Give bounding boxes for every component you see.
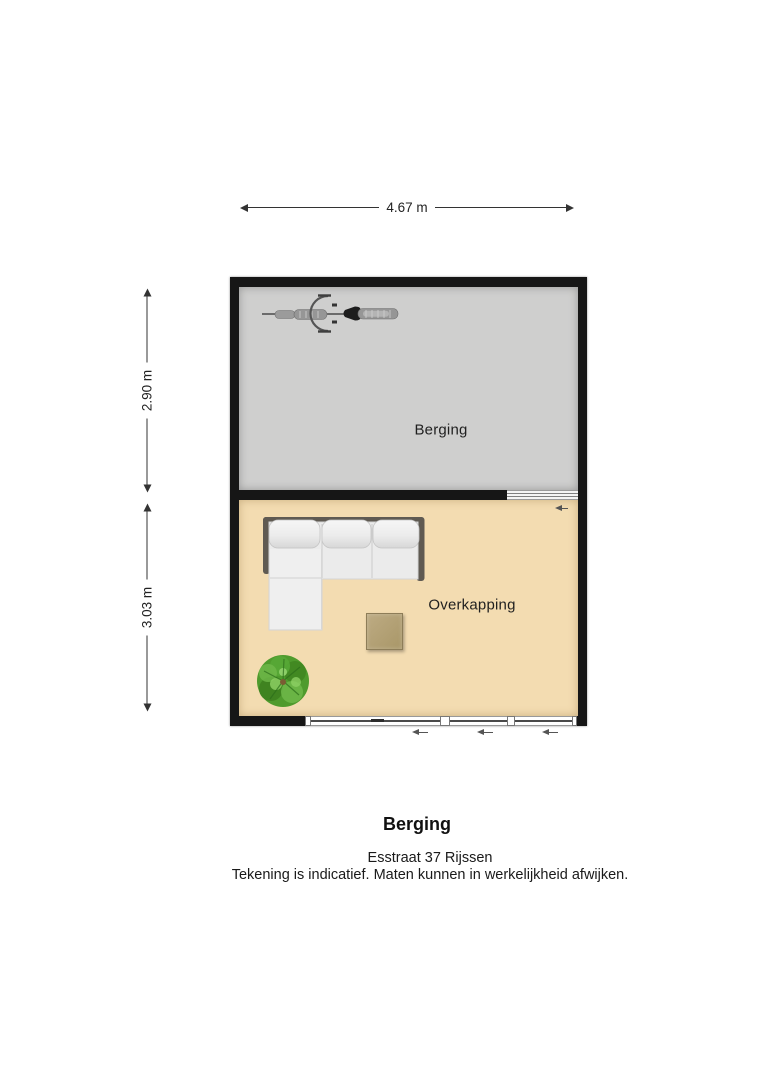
- floorplan-canvas: Berging: [230, 277, 587, 726]
- dimension-total-width-label: 4.67 m: [379, 201, 434, 214]
- room-berging: Berging: [239, 287, 578, 490]
- dimension-total-width: 4.67 m: [240, 201, 574, 214]
- arrowhead-right-icon: [566, 204, 574, 212]
- arrowhead-bottom-icon: [143, 485, 151, 493]
- sliding-panel: [311, 716, 440, 726]
- dimension-berging-depth: 2.90 m: [141, 289, 154, 493]
- arrowhead-top-icon: [143, 289, 151, 297]
- wall-post: [507, 716, 515, 726]
- bicycle-icon: [258, 291, 403, 336]
- arrowhead-bottom-icon: [143, 704, 151, 712]
- sliding-panel: [515, 716, 572, 726]
- room-berging-label: Berging: [414, 422, 467, 439]
- slide-direction-arrow-icon: [412, 729, 428, 735]
- slide-direction-arrow-icon: [477, 729, 493, 735]
- arrowhead-top-icon: [143, 504, 151, 512]
- wall-post: [440, 716, 450, 726]
- slide-direction-arrow-icon: [542, 729, 558, 735]
- slide-direction-arrow-icon: [555, 505, 568, 511]
- plan-title: Berging: [383, 814, 451, 835]
- plant-icon: [250, 649, 316, 713]
- room-overkapping-label: Overkapping: [428, 597, 515, 614]
- dimension-overkapping-depth: 3.03 m: [141, 504, 154, 712]
- door-handle-icon: [371, 719, 384, 722]
- wall-post: [572, 716, 577, 726]
- plan-address: Esstraat 37 Rijssen: [368, 850, 493, 866]
- dimension-overkapping-depth-label: 3.03 m: [141, 580, 154, 635]
- divider-sliding-door: [507, 490, 578, 500]
- arrowhead-left-icon: [240, 204, 248, 212]
- sliding-panel: [450, 716, 507, 726]
- side-table-icon: [366, 613, 403, 650]
- plan-disclaimer: Tekening is indicatief. Maten kunnen in …: [232, 867, 629, 883]
- front-sliding-wall: [305, 716, 577, 726]
- dimension-berging-depth-label: 2.90 m: [141, 363, 154, 418]
- room-overkapping: Overkapping: [239, 500, 578, 716]
